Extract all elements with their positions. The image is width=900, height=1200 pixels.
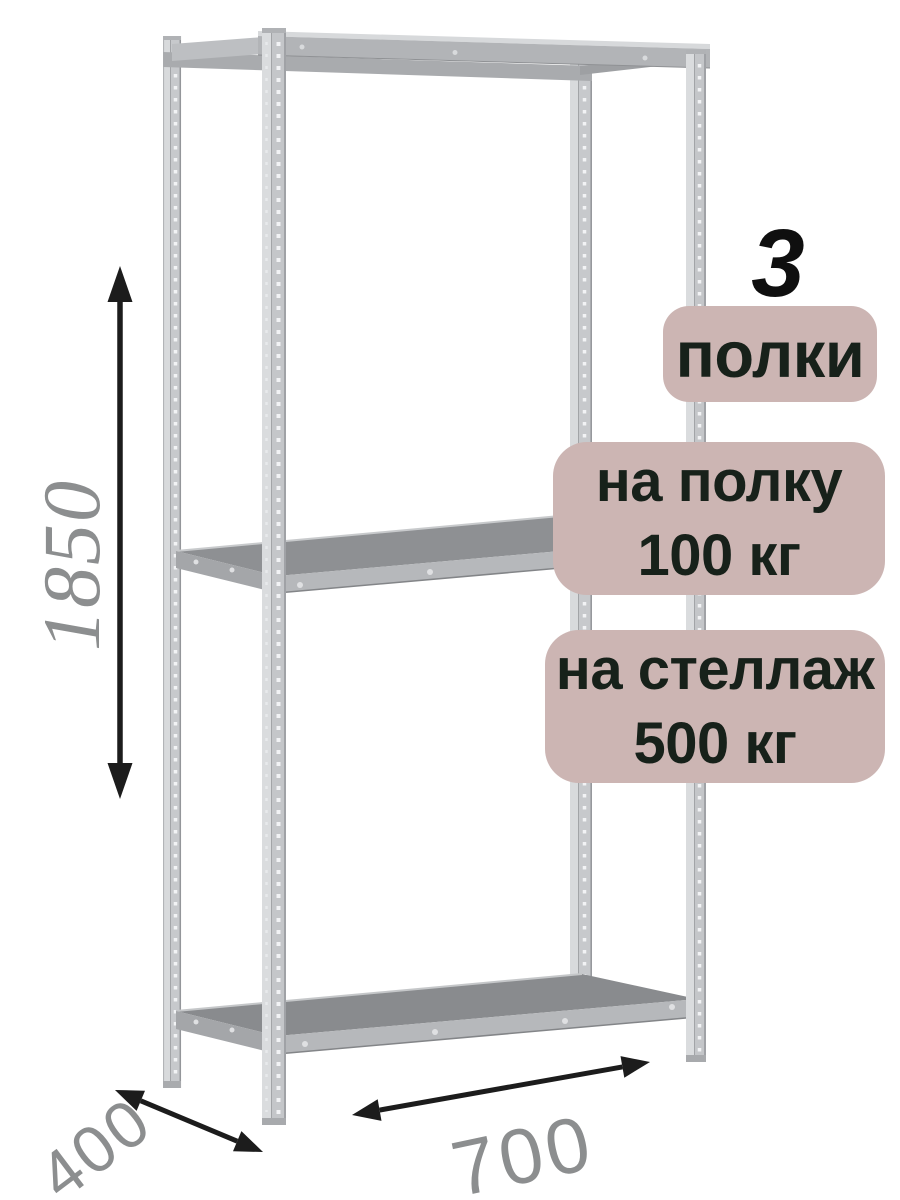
shelf-load-line2: 100 кг	[637, 519, 800, 592]
rack-load-line2: 500 кг	[633, 707, 796, 780]
shelving-rack-illustration	[0, 0, 900, 1200]
shelf-count-badge: полки	[663, 306, 877, 402]
front-left-post	[262, 28, 286, 1125]
bottom-shelf	[176, 974, 697, 1054]
product-image-canvas: 1850 400 700 3 полки на полку 100 кг на …	[0, 0, 900, 1200]
height-dimension-label: 1850	[25, 479, 119, 651]
shelf-load-line1: на полку	[596, 445, 843, 518]
shelf-load-badge: на полку 100 кг	[553, 442, 885, 595]
shelf-count-number: 3	[751, 209, 804, 319]
rack-load-line1: на стеллаж	[556, 633, 874, 706]
shelf-count-label: полки	[676, 317, 865, 392]
rack-load-badge: на стеллаж 500 кг	[545, 630, 885, 783]
width-dimension-arrow	[352, 1056, 650, 1121]
